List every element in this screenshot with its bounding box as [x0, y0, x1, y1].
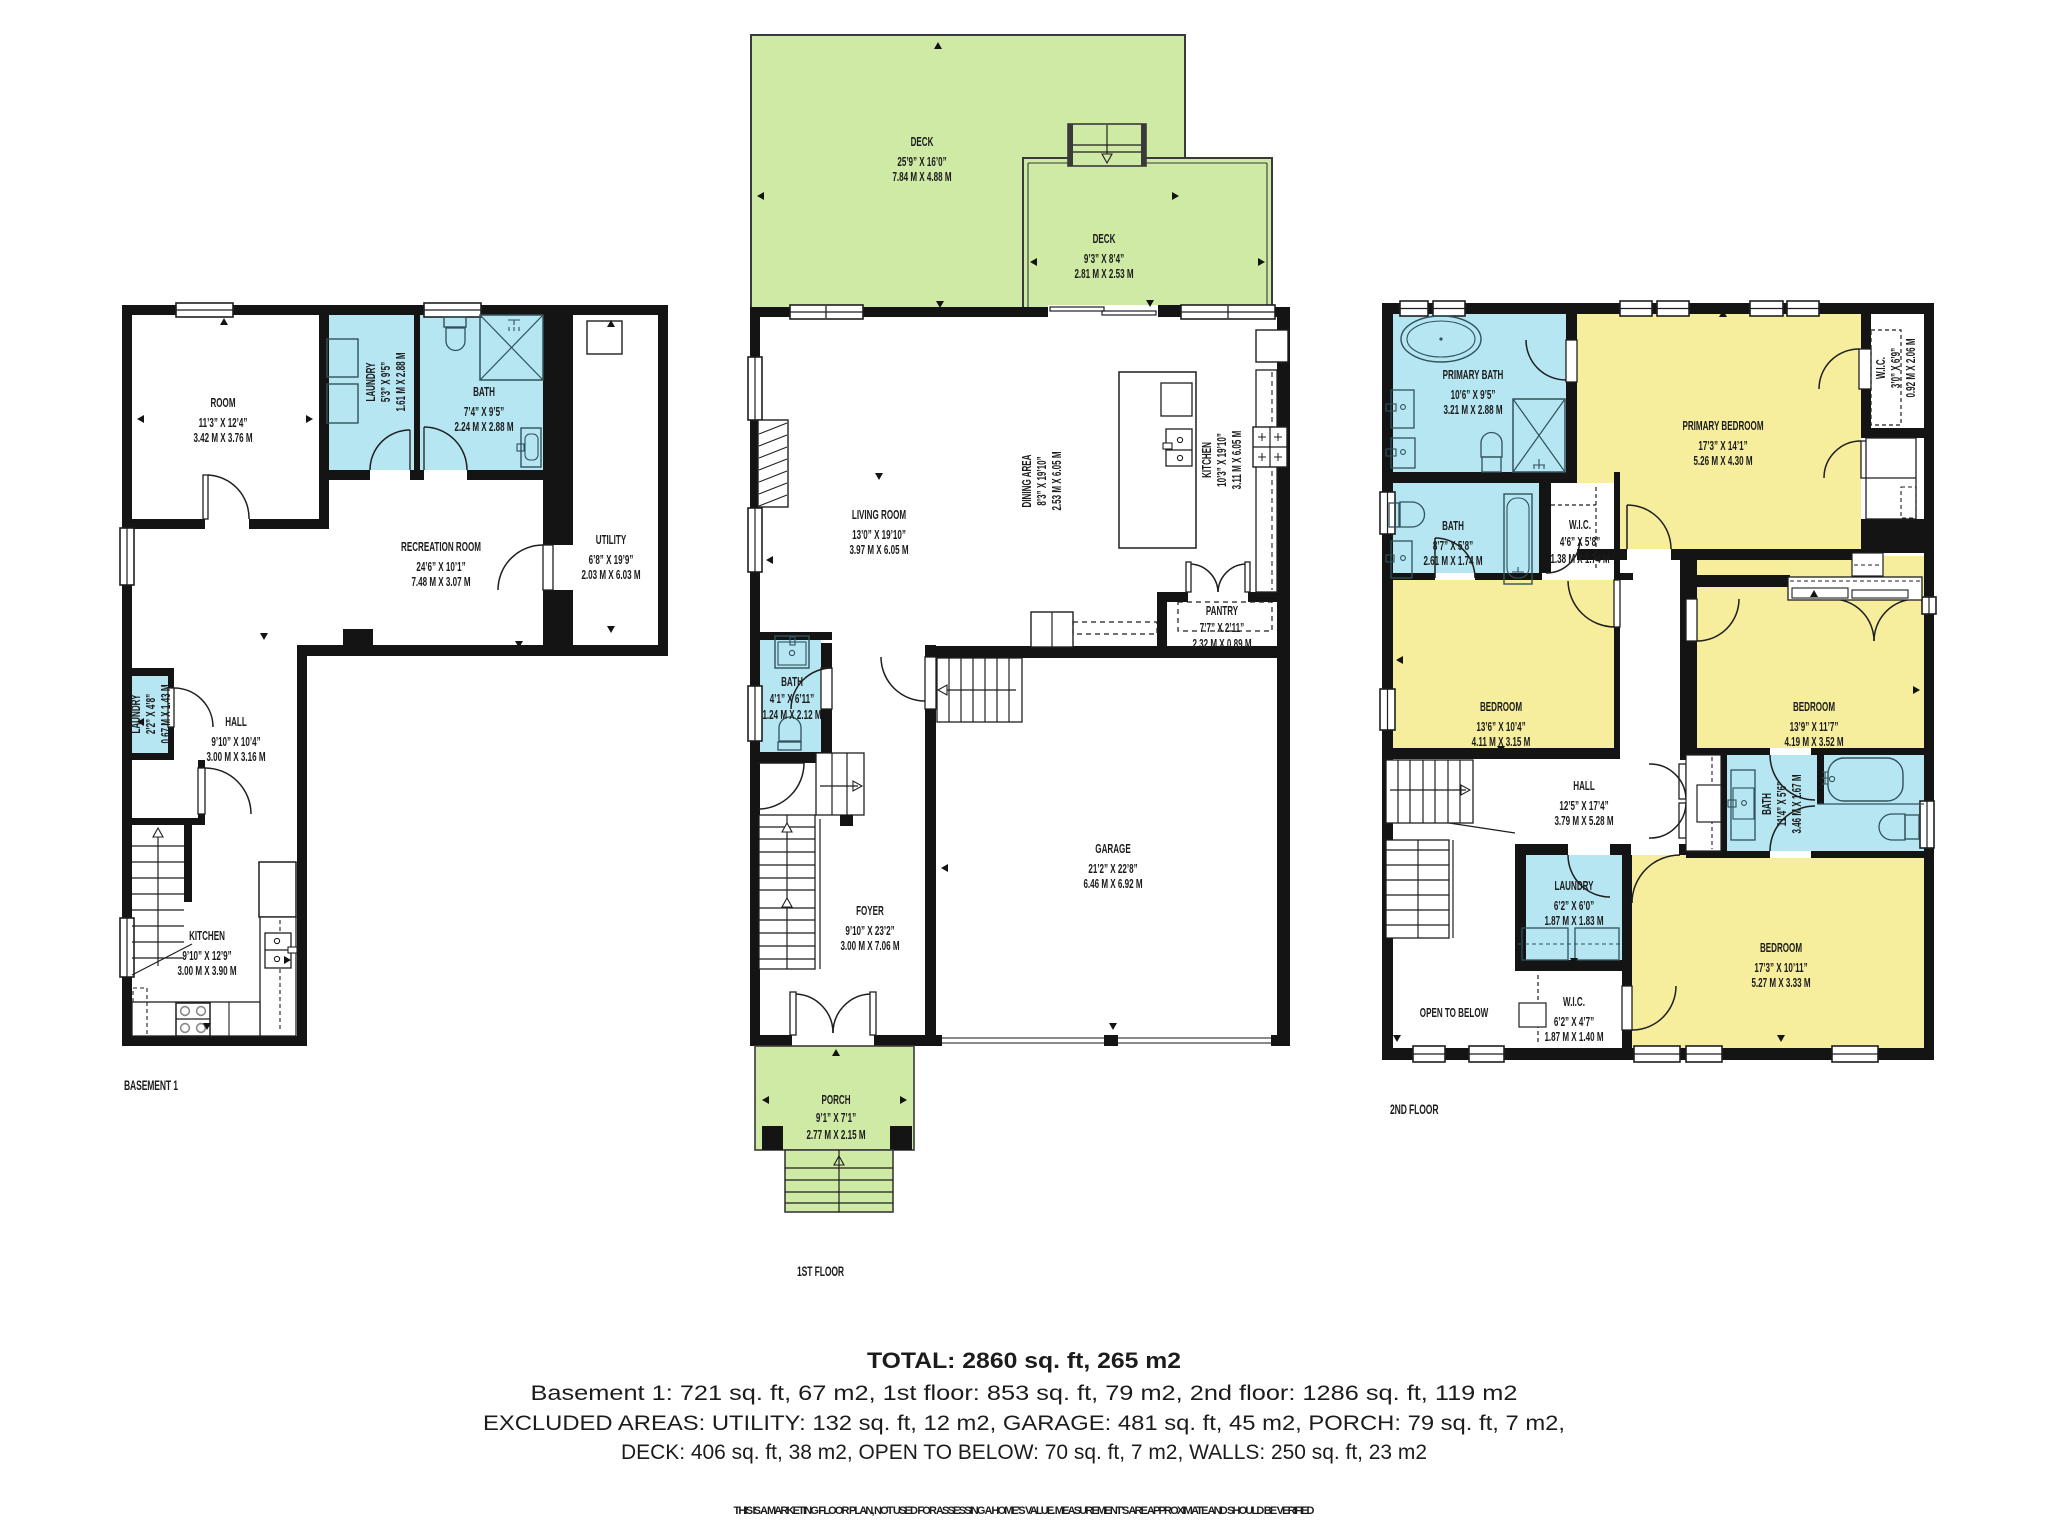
svg-text:6’2” X 6’0”: 6’2” X 6’0” [1554, 898, 1594, 913]
svg-text:10’6” X 9’5”: 10’6” X 9’5” [1451, 387, 1496, 402]
svg-text:7’7” X 2’11”: 7’7” X 2’11” [1200, 620, 1244, 635]
svg-text:12’5” X 17’4”: 12’5” X 17’4” [1559, 798, 1608, 813]
svg-text:7.84 M X 4.88 M: 7.84 M X 4.88 M [892, 169, 951, 184]
svg-text:BATH: BATH [473, 384, 495, 399]
svg-text:BATH: BATH [1442, 518, 1464, 533]
svg-text:BASEMENT 1: BASEMENT 1 [124, 1078, 178, 1093]
svg-text:BATH: BATH [1759, 793, 1774, 815]
svg-text:0.92 M X 2.06 M: 0.92 M X 2.06 M [1903, 338, 1918, 397]
svg-text:24’6” X 10’1”: 24’6” X 10’1” [416, 559, 465, 574]
svg-text:TOTAL: 2860 sq. ft, 265 m2: TOTAL: 2860 sq. ft, 265 m2 [867, 1348, 1181, 1373]
svg-text:PRIMARY BEDROOM: PRIMARY BEDROOM [1682, 418, 1763, 433]
svg-text:4’6” X 5’8”: 4’6” X 5’8” [1560, 534, 1600, 549]
svg-text:6’2” X 4’7”: 6’2” X 4’7” [1554, 1014, 1594, 1029]
svg-text:5.27 M X 3.33 M: 5.27 M X 3.33 M [1751, 975, 1810, 990]
svg-text:5.26 M X 4.30 M: 5.26 M X 4.30 M [1693, 453, 1752, 468]
svg-text:13’6” X 10’4”: 13’6” X 10’4” [1476, 719, 1525, 734]
svg-text:FOYER: FOYER [856, 903, 884, 918]
svg-text:KITCHEN: KITCHEN [1199, 442, 1214, 478]
svg-text:BEDROOM: BEDROOM [1760, 940, 1802, 955]
svg-text:21’2” X 22’8”: 21’2” X 22’8” [1088, 861, 1137, 876]
svg-text:17’3” X 10’11”: 17’3” X 10’11” [1754, 960, 1807, 975]
svg-text:LAUNDRY: LAUNDRY [363, 362, 378, 401]
svg-text:9’1” X 7’1”: 9’1” X 7’1” [816, 1110, 856, 1125]
svg-text:KITCHEN: KITCHEN [189, 928, 225, 943]
svg-text:11’4” X 5’6”: 11’4” X 5’6” [1774, 782, 1789, 826]
svg-text:UTILITY: UTILITY [596, 532, 627, 547]
svg-text:4.19 M X 3.52 M: 4.19 M X 3.52 M [1784, 734, 1843, 749]
svg-text:8’3” X 19’10”: 8’3” X 19’10” [1034, 456, 1049, 505]
svg-text:1.24 M X 2.12 M: 1.24 M X 2.12 M [762, 707, 821, 722]
svg-text:9’10” X 12’9”: 9’10” X 12’9” [182, 948, 231, 963]
svg-text:RECREATION ROOM: RECREATION ROOM [401, 539, 481, 554]
svg-text:GARAGE: GARAGE [1095, 841, 1131, 856]
svg-text:3.79 M X 5.28 M: 3.79 M X 5.28 M [1554, 813, 1613, 828]
svg-text:2.77 M X 2.15 M: 2.77 M X 2.15 M [806, 1127, 865, 1142]
svg-text:Basement 1: 721 sq. ft, 67 m2,: Basement 1: 721 sq. ft, 67 m2, 1st floor… [531, 1382, 1518, 1405]
svg-text:BATH: BATH [781, 674, 803, 689]
svg-text:2.32 M X 0.89 M: 2.32 M X 0.89 M [1192, 636, 1251, 651]
svg-text:DECK: 406 sq. ft, 38 m2, OPEN: DECK: 406 sq. ft, 38 m2, OPEN TO BELOW: … [621, 1441, 1427, 1464]
svg-text:3.00 M X 3.90 M: 3.00 M X 3.90 M [177, 963, 236, 978]
svg-text:0.67 M X 1.43 M: 0.67 M X 1.43 M [158, 684, 173, 743]
svg-text:2.61 M X 1.74 M: 2.61 M X 1.74 M [1423, 553, 1482, 568]
svg-text:3.11 M X 6.05 M: 3.11 M X 6.05 M [1229, 431, 1244, 490]
svg-text:3.46 M X 1.67 M: 3.46 M X 1.67 M [1789, 774, 1804, 833]
svg-text:W.I.C.: W.I.C. [1873, 357, 1888, 379]
svg-text:2.81 M X 2.53 M: 2.81 M X 2.53 M [1074, 266, 1133, 281]
svg-text:1.61 M X 2.88 M: 1.61 M X 2.88 M [393, 352, 408, 411]
svg-text:2.53 M X 6.05 M: 2.53 M X 6.05 M [1049, 451, 1064, 510]
svg-text:2.03 M X 6.03 M: 2.03 M X 6.03 M [581, 567, 640, 582]
svg-text:BEDROOM: BEDROOM [1480, 699, 1522, 714]
svg-text:ROOM: ROOM [210, 395, 235, 410]
svg-text:PORCH: PORCH [821, 1092, 850, 1107]
svg-text:EXCLUDED AREAS: UTILITY: 132 s: EXCLUDED AREAS: UTILITY: 132 sq. ft, 12 … [483, 1412, 1565, 1435]
svg-text:DINING AREA: DINING AREA [1019, 454, 1034, 507]
svg-text:5’3” X 9’5”: 5’3” X 9’5” [378, 362, 393, 402]
svg-text:LIVING ROOM: LIVING ROOM [852, 507, 906, 522]
svg-text:2.24 M X 2.88 M: 2.24 M X 2.88 M [454, 419, 513, 434]
svg-text:DECK: DECK [911, 134, 934, 149]
svg-text:13’9” X 11’7”: 13’9” X 11’7” [1790, 719, 1839, 734]
svg-text:3.42 M X 3.76 M: 3.42 M X 3.76 M [193, 430, 252, 445]
svg-text:1.87 M X 1.40 M: 1.87 M X 1.40 M [1544, 1029, 1603, 1044]
svg-text:3.00 M X 3.16 M: 3.00 M X 3.16 M [206, 749, 265, 764]
svg-text:7’4” X 9’5”: 7’4” X 9’5” [464, 404, 504, 419]
svg-text:9’10” X 23’2”: 9’10” X 23’2” [845, 923, 894, 938]
svg-text:25’9” X 16’0”: 25’9” X 16’0” [897, 154, 946, 169]
svg-text:3.00 M X 7.06 M: 3.00 M X 7.06 M [840, 938, 899, 953]
svg-text:7.48 M X 3.07 M: 7.48 M X 3.07 M [411, 574, 470, 589]
svg-text:13’0” X 19’10”: 13’0” X 19’10” [852, 527, 906, 542]
svg-text:HALL: HALL [225, 714, 247, 729]
svg-text:1ST FLOOR: 1ST FLOOR [797, 1264, 844, 1279]
svg-text:OPEN TO BELOW: OPEN TO BELOW [1420, 1005, 1489, 1020]
svg-text:BEDROOM: BEDROOM [1793, 699, 1835, 714]
svg-text:LAUNDRY: LAUNDRY [128, 694, 143, 733]
svg-text:2ND FLOOR: 2ND FLOOR [1390, 1102, 1439, 1117]
svg-text:HALL: HALL [1573, 778, 1595, 793]
svg-text:LAUNDRY: LAUNDRY [1554, 878, 1593, 893]
svg-text:DECK: DECK [1093, 231, 1116, 246]
svg-text:9’10” X 10’4”: 9’10” X 10’4” [211, 734, 260, 749]
svg-text:3.97 M X 6.05 M: 3.97 M X 6.05 M [849, 542, 908, 557]
svg-text:3’0” X 6’9”: 3’0” X 6’9” [1888, 348, 1903, 388]
svg-text:THIS IS A MARKETING FLOOR PLAN: THIS IS A MARKETING FLOOR PLAN, NOT USED… [734, 1505, 1315, 1517]
svg-text:1.87 M X 1.83 M: 1.87 M X 1.83 M [1544, 913, 1603, 928]
svg-text:9’3” X 8’4”: 9’3” X 8’4” [1084, 251, 1124, 266]
svg-text:W.I.C.: W.I.C. [1569, 517, 1591, 532]
svg-text:10’3” X 19’10”: 10’3” X 19’10” [1214, 433, 1229, 487]
svg-text:6.46 M X 6.92 M: 6.46 M X 6.92 M [1083, 876, 1142, 891]
svg-text:17’3” X 14’1”: 17’3” X 14’1” [1698, 438, 1747, 453]
svg-text:11’3” X 12’4”: 11’3” X 12’4” [199, 415, 248, 430]
svg-text:6’8” X 19’9”: 6’8” X 19’9” [589, 552, 634, 567]
svg-text:4’1” X 6’11”: 4’1” X 6’11” [770, 691, 814, 706]
svg-text:8’7” X 5’8”: 8’7” X 5’8” [1433, 538, 1473, 553]
svg-text:3.21 M X 2.88 M: 3.21 M X 2.88 M [1443, 402, 1502, 417]
svg-text:W.I.C.: W.I.C. [1563, 994, 1585, 1009]
svg-text:1.38 M X 1.74 M: 1.38 M X 1.74 M [1550, 551, 1609, 566]
svg-text:2’2” X 4’8”: 2’2” X 4’8” [143, 694, 158, 734]
svg-text:PRIMARY BATH: PRIMARY BATH [1443, 367, 1504, 382]
svg-text:PANTRY: PANTRY [1206, 603, 1238, 618]
